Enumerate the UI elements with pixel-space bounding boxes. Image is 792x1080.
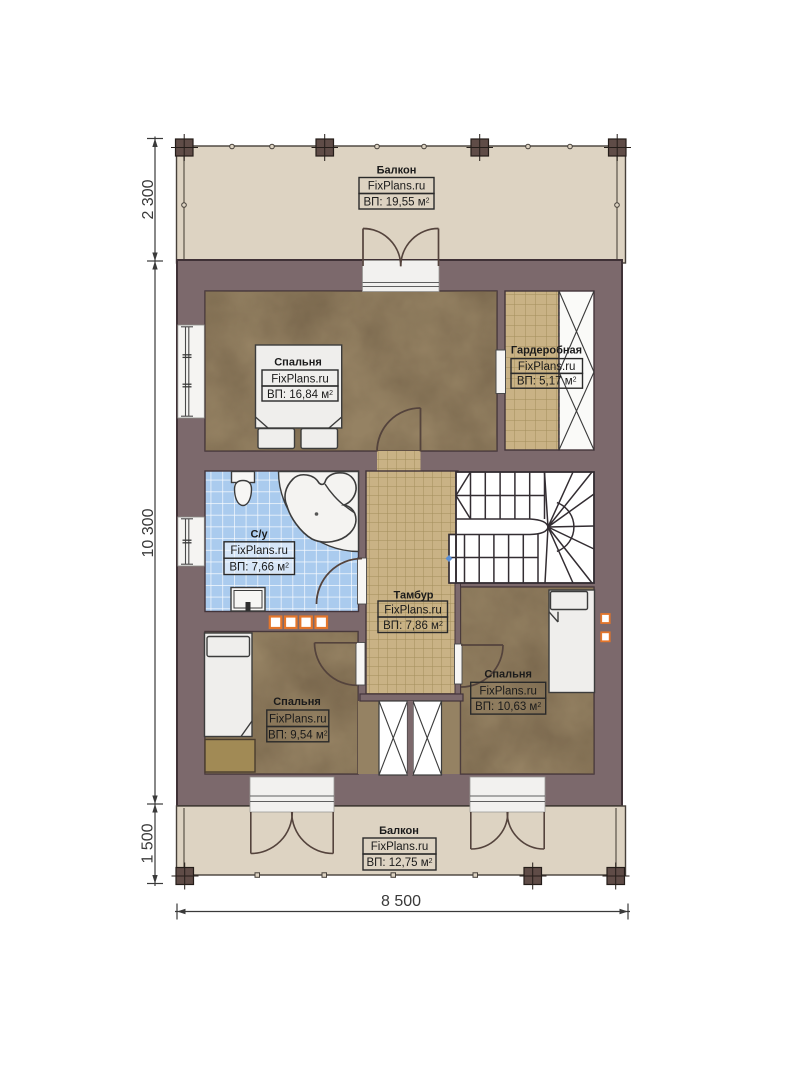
svg-text:FixPlans.ru: FixPlans.ru	[371, 841, 429, 853]
svg-text:ВП: 7,86 м2: ВП: 7,86 м2	[383, 620, 443, 632]
svg-text:С/у: С/у	[250, 529, 268, 541]
svg-text:ВП: 19,55 м2: ВП: 19,55 м2	[363, 197, 429, 209]
svg-text:FixPlans.ru: FixPlans.ru	[479, 685, 537, 697]
svg-text:Гардеробная: Гардеробная	[511, 345, 582, 357]
svg-text:ВП: 7,66 м2: ВП: 7,66 м2	[229, 562, 289, 574]
svg-text:Тамбур: Тамбур	[394, 590, 434, 602]
svg-text:FixPlans.ru: FixPlans.ru	[269, 714, 327, 726]
svg-text:ВП: 10,63 м2: ВП: 10,63 м2	[475, 701, 541, 713]
svg-text:1 500: 1 500	[140, 823, 157, 863]
svg-text:ВП: 9,54 м2: ВП: 9,54 м2	[268, 730, 328, 742]
svg-text:ВП: 5,17 м2: ВП: 5,17 м2	[517, 376, 577, 388]
svg-text:Балкон: Балкон	[379, 825, 419, 837]
svg-text:Спальня: Спальня	[273, 696, 321, 708]
svg-text:FixPlans.ru: FixPlans.ru	[230, 545, 288, 557]
svg-text:FixPlans.ru: FixPlans.ru	[368, 181, 426, 193]
svg-text:Балкон: Балкон	[377, 165, 417, 177]
svg-text:Спальня: Спальня	[274, 357, 322, 369]
svg-text:8 500: 8 500	[381, 893, 421, 910]
svg-text:FixPlans.ru: FixPlans.ru	[518, 361, 576, 373]
svg-text:FixPlans.ru: FixPlans.ru	[271, 374, 329, 386]
svg-text:2 300: 2 300	[140, 179, 157, 219]
svg-text:FixPlans.ru: FixPlans.ru	[384, 605, 442, 617]
svg-text:ВП: 16,84 м2: ВП: 16,84 м2	[267, 389, 333, 401]
svg-text:10 300: 10 300	[140, 508, 157, 557]
svg-text:Спальня: Спальня	[484, 669, 532, 681]
svg-text:ВП: 12,75 м2: ВП: 12,75 м2	[366, 857, 432, 869]
